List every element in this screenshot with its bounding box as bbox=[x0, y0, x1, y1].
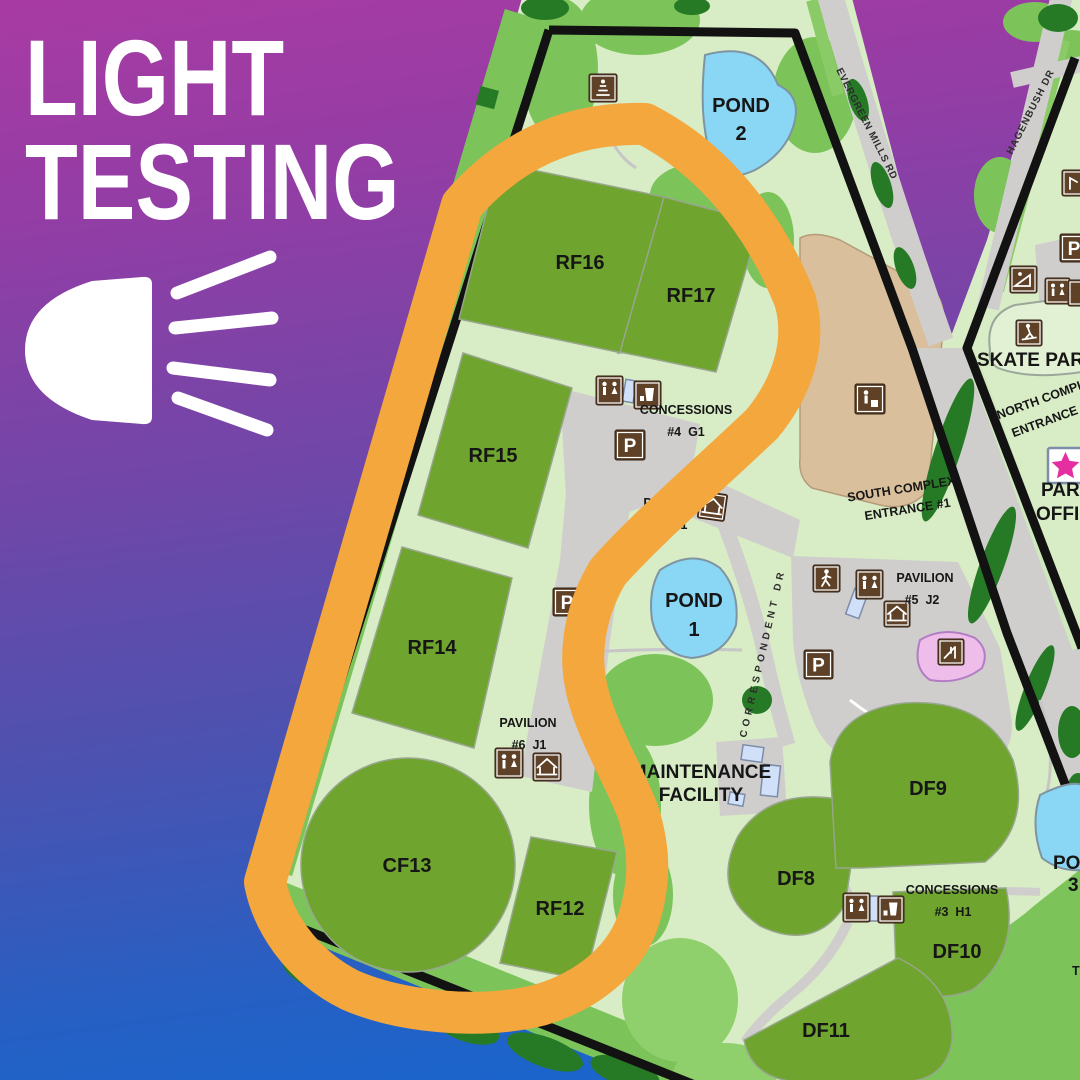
restroom-icon bbox=[856, 570, 883, 599]
headlight-icon bbox=[20, 250, 290, 445]
restroom-icon bbox=[843, 893, 870, 922]
label-pond1: POND bbox=[665, 590, 723, 612]
svg-text:P: P bbox=[812, 656, 825, 677]
poster-title-line2: TESTING bbox=[25, 130, 399, 234]
label-rf17: RF17 bbox=[667, 285, 716, 307]
label-rf12: RF12 bbox=[536, 898, 585, 920]
label-pond3: POND bbox=[1053, 853, 1080, 874]
label-maintenance-2: FACILITY bbox=[659, 785, 744, 806]
label-maintenance: MAINTENANCE bbox=[631, 762, 771, 783]
label-rf14: RF14 bbox=[408, 637, 458, 659]
fountain-icon bbox=[589, 74, 617, 102]
parking-icon: P bbox=[615, 430, 645, 460]
litter-icon bbox=[855, 384, 885, 414]
label-rf15: RF15 bbox=[469, 445, 518, 467]
label-pavilion6-2: #6 J1 bbox=[512, 738, 547, 752]
label-df11: DF11 bbox=[802, 1020, 850, 1042]
restroom-icon bbox=[1045, 278, 1070, 304]
label-concessions4-2: #4 G1 bbox=[667, 425, 705, 439]
label-df10: DF10 bbox=[933, 941, 982, 963]
skater-icon bbox=[1016, 320, 1042, 346]
bike-ramp-icon bbox=[1010, 266, 1037, 293]
label-pond2: POND bbox=[712, 95, 770, 117]
amenity-icon bbox=[1068, 280, 1080, 306]
park-office-star-icon bbox=[1048, 448, 1080, 483]
parking-icon: P bbox=[1060, 234, 1080, 262]
poster-title-line1: LIGHT bbox=[25, 26, 399, 130]
pavilion-icon bbox=[533, 753, 561, 781]
svg-text:P: P bbox=[1068, 239, 1080, 260]
hiker-icon bbox=[813, 565, 840, 592]
restroom-icon bbox=[596, 376, 623, 405]
label-pavilion5: PAVILION bbox=[896, 571, 953, 585]
label-concessions3: CONCESSIONS bbox=[906, 883, 998, 897]
label-df9: DF9 bbox=[909, 778, 947, 800]
label-park-office-2: OFFICE bbox=[1036, 504, 1080, 525]
amenity-icon bbox=[1062, 170, 1080, 196]
label-pond2-num: 2 bbox=[735, 123, 746, 145]
concessions-icon bbox=[878, 896, 904, 923]
label-pond1-num: 1 bbox=[688, 619, 699, 641]
label-pavilion5-2: #5 J2 bbox=[905, 593, 940, 607]
label-concessions3-2: #3 H1 bbox=[935, 905, 972, 919]
label-skate-park: SKATE PARK bbox=[977, 350, 1080, 371]
label-cf13: CF13 bbox=[383, 855, 432, 877]
label-trail-partial: T bbox=[1072, 964, 1080, 978]
playground-icon bbox=[938, 639, 964, 665]
label-pond3-num: 3 bbox=[1068, 875, 1079, 896]
label-pavilion6: PAVILION bbox=[499, 716, 556, 730]
light-testing-poster: P P P P bbox=[0, 0, 1080, 1080]
label-rf16: RF16 bbox=[556, 252, 605, 274]
poster-title: LIGHT TESTING bbox=[25, 26, 399, 233]
label-df8: DF8 bbox=[777, 868, 815, 890]
label-concessions4: CONCESSIONS bbox=[640, 403, 732, 417]
restroom-icon bbox=[495, 748, 523, 778]
label-park-office: PARK bbox=[1041, 480, 1080, 501]
svg-text:P: P bbox=[624, 436, 637, 457]
parking-icon: P bbox=[804, 650, 833, 679]
